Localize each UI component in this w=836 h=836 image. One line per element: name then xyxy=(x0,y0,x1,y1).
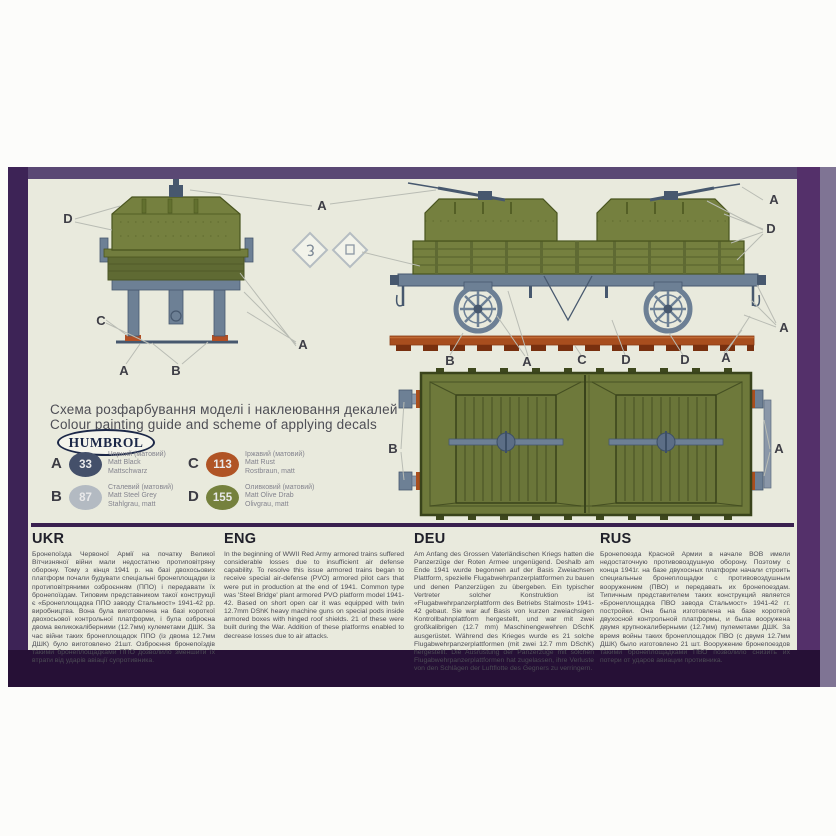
paint-name-deu: Olivgrau, matt xyxy=(245,501,314,509)
paint-row-d: D 155 Оливковий (матовий) Matt Olive Dra… xyxy=(188,483,314,510)
paint-key: A xyxy=(51,450,67,472)
decal-diamond-2 xyxy=(333,233,367,267)
paint-row-a: A 33 Чорний (матовий) Matt Black Mattsch… xyxy=(51,450,166,477)
column-body: Бронепоезда Красной Армии в начале ВОВ и… xyxy=(600,551,790,665)
paint-name-eng: Matt Olive Drab xyxy=(245,492,314,500)
side-view-drawing xyxy=(390,183,766,348)
label-end-view-a-right: A xyxy=(298,337,308,352)
paint-code: 33 xyxy=(79,459,92,471)
frame-border-top xyxy=(8,167,820,179)
paint-name-deu: Stahlgrau, matt xyxy=(108,501,173,509)
top-view-drawing xyxy=(399,371,771,517)
history-column-eng: ENG In the beginning of WWII Red Army ar… xyxy=(224,531,404,641)
label-rail-d1: D xyxy=(621,352,630,367)
paint-row-b: B 87 Сталевий (матовий) Matt Steel Grey … xyxy=(51,483,173,510)
history-column-ukr: UKR Бронепоїзда Червоної Армії на початк… xyxy=(32,531,215,665)
column-title: DEU xyxy=(414,531,594,547)
paint-row-c: C 113 Іржавий (матовий) Matt Rust Rostbr… xyxy=(188,450,305,477)
column-body: In the beginning of WWII Red Army armore… xyxy=(224,551,404,641)
label-end-view-b-bottom: B xyxy=(171,363,180,378)
label-rail-c: C xyxy=(577,352,587,367)
paint-labels: Іржавий (матовий) Matt Rust Rostbraun, m… xyxy=(245,450,305,476)
label-side-view-d: D xyxy=(766,221,775,236)
paint-code: 155 xyxy=(213,492,232,504)
paint-swatch: 155 xyxy=(206,485,239,510)
paint-labels: Чорний (матовий) Matt Black Mattschwarz xyxy=(108,450,166,476)
paint-labels: Оливковий (матовий) Matt Olive Drab Oliv… xyxy=(245,483,314,509)
paint-key: C xyxy=(188,450,204,472)
buffer-left xyxy=(399,390,422,490)
boxart-scan: { "brand": { "name": "HUMBROL" }, "guide… xyxy=(0,0,836,836)
label-top-a: A xyxy=(317,198,327,213)
paint-name-ukr: Іржавий (матовий) xyxy=(245,451,305,459)
paint-name-eng: Matt Black xyxy=(108,459,166,467)
label-side-view-a-top: A xyxy=(769,192,779,207)
paint-swatch: 33 xyxy=(69,452,102,477)
label-end-view-a-bottom: A xyxy=(119,363,129,378)
label-end-view-c: C xyxy=(96,313,106,328)
label-rail-d2: D xyxy=(680,352,689,367)
guide-title: Схема розфарбування моделі і наклеювання… xyxy=(50,402,398,432)
column-body: Am Anfang des Grossen Vaterländischen Kr… xyxy=(414,551,594,673)
label-top-view-b: B xyxy=(388,441,397,456)
frame-border-right xyxy=(797,167,820,687)
label-end-view-d: D xyxy=(63,211,72,226)
section-divider xyxy=(31,523,794,527)
paint-swatch: 87 xyxy=(69,485,102,510)
frame-border-left xyxy=(8,167,28,687)
column-body: Бронепоїзда Червоної Армії на початку Ве… xyxy=(32,551,215,665)
label-rail-a: A xyxy=(522,354,532,369)
paint-key: B xyxy=(51,483,67,505)
label-side-view-a-right: A xyxy=(779,320,789,335)
frame-outer-strip xyxy=(820,167,836,687)
history-column-deu: DEU Am Anfang des Grossen Vaterländische… xyxy=(414,531,594,673)
humbrol-logo-text: HUMBROL xyxy=(69,435,144,451)
history-column-rus: RUS Бронепоезда Красной Армии в начале В… xyxy=(600,531,790,665)
label-top-view-a: A xyxy=(774,441,784,456)
paint-swatch: 113 xyxy=(206,452,239,477)
guide-title-ukr: Схема розфарбування моделі і наклеювання… xyxy=(50,402,398,417)
column-title: UKR xyxy=(32,531,215,547)
decal-diamond-1 xyxy=(293,233,327,267)
paint-key: D xyxy=(188,483,204,505)
paint-code: 87 xyxy=(79,492,92,504)
paint-name-deu: Mattschwarz xyxy=(108,468,166,476)
paint-name-ukr: Оливковий (матовий) xyxy=(245,484,314,492)
paint-name-deu: Rostbraun, matt xyxy=(245,468,305,476)
end-view-drawing xyxy=(100,179,253,342)
paint-name-ukr: Чорний (матовий) xyxy=(108,451,166,459)
column-title: RUS xyxy=(600,531,790,547)
column-title: ENG xyxy=(224,531,404,547)
paint-labels: Сталевий (матовий) Matt Steel Grey Stahl… xyxy=(108,483,173,509)
label-rail-b: B xyxy=(445,353,454,368)
wheel-left xyxy=(456,282,500,331)
label-rail-a2: A xyxy=(721,350,731,365)
paint-name-eng: Matt Steel Grey xyxy=(108,492,173,500)
paint-name-eng: Matt Rust xyxy=(245,459,305,467)
wheel-right xyxy=(646,282,690,331)
paint-code: 113 xyxy=(213,459,232,471)
paint-name-ukr: Сталевий (матовий) xyxy=(108,484,173,492)
